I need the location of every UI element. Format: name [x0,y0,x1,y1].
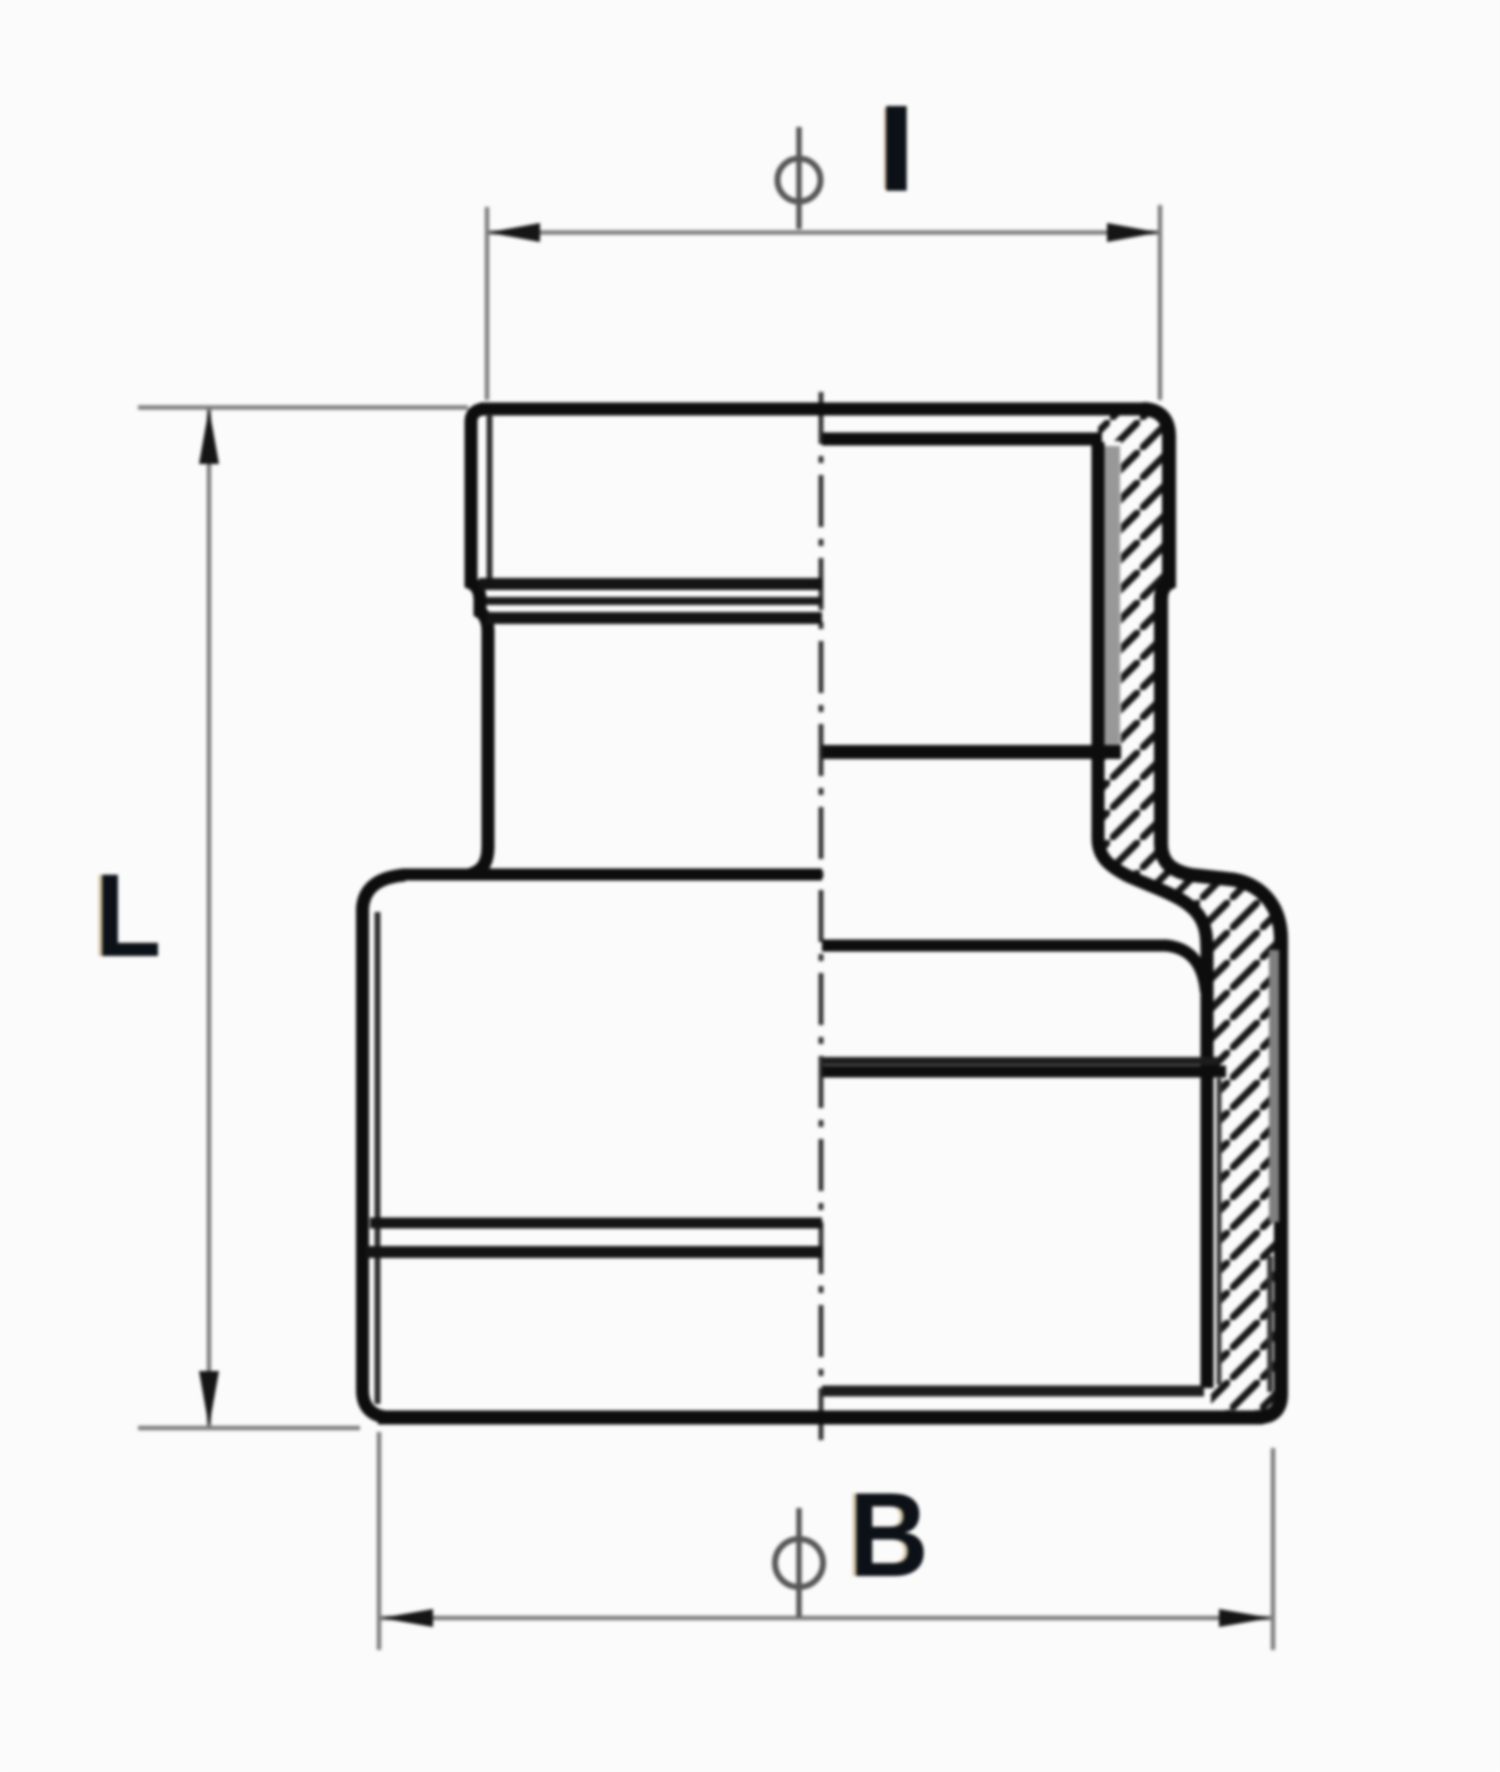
svg-text:B: B [849,1469,929,1602]
svg-text:L: L [95,850,161,982]
svg-text:I: I [880,83,913,215]
